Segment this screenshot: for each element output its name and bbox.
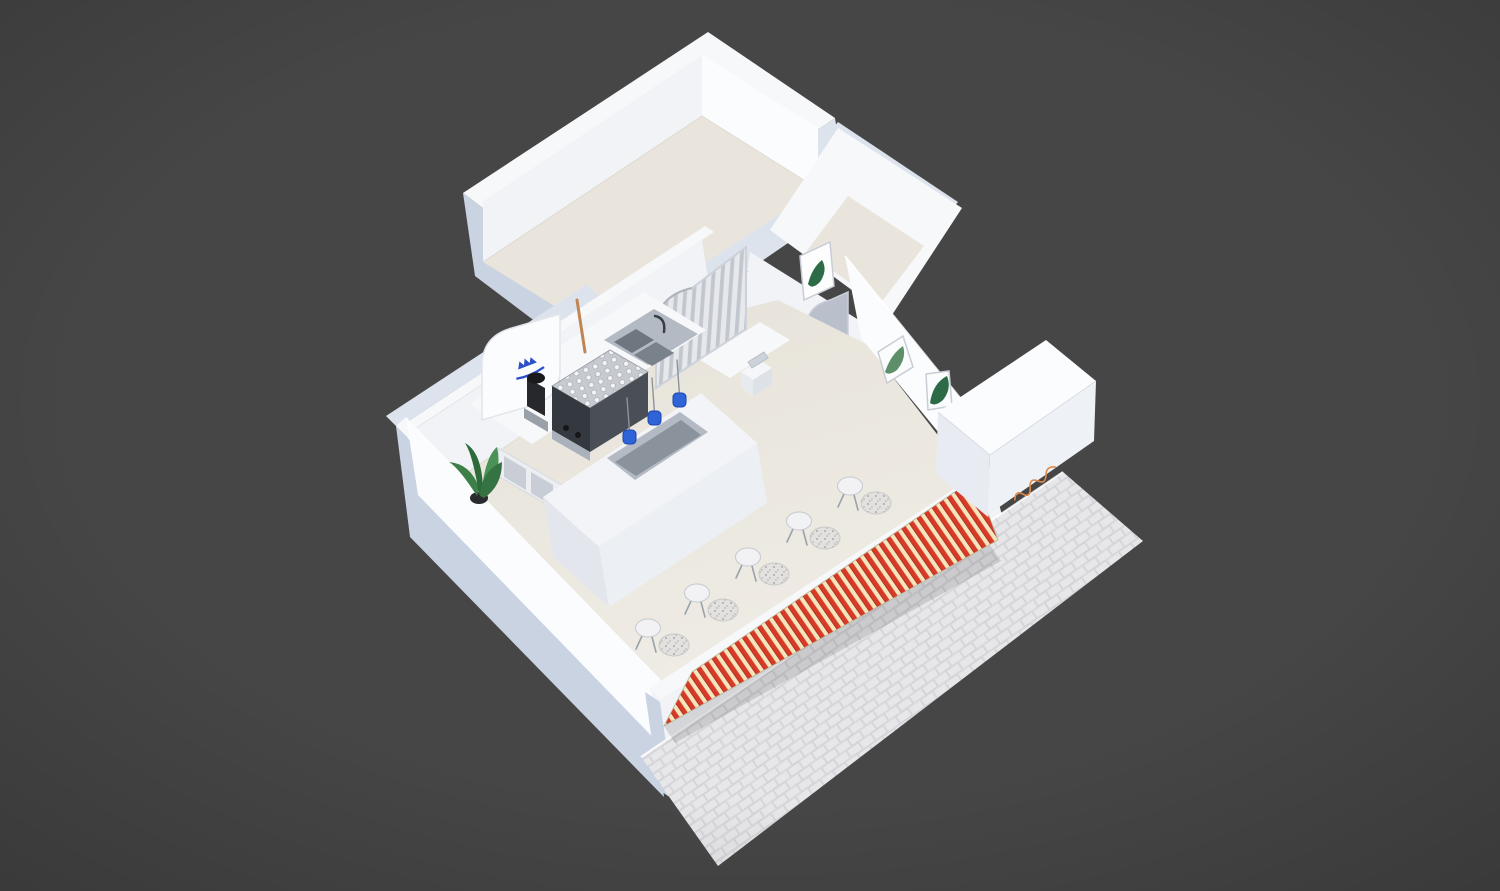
render-viewport <box>0 0 1500 891</box>
vignette-overlay <box>0 0 1500 891</box>
cafe-isometric-render <box>0 0 1500 891</box>
